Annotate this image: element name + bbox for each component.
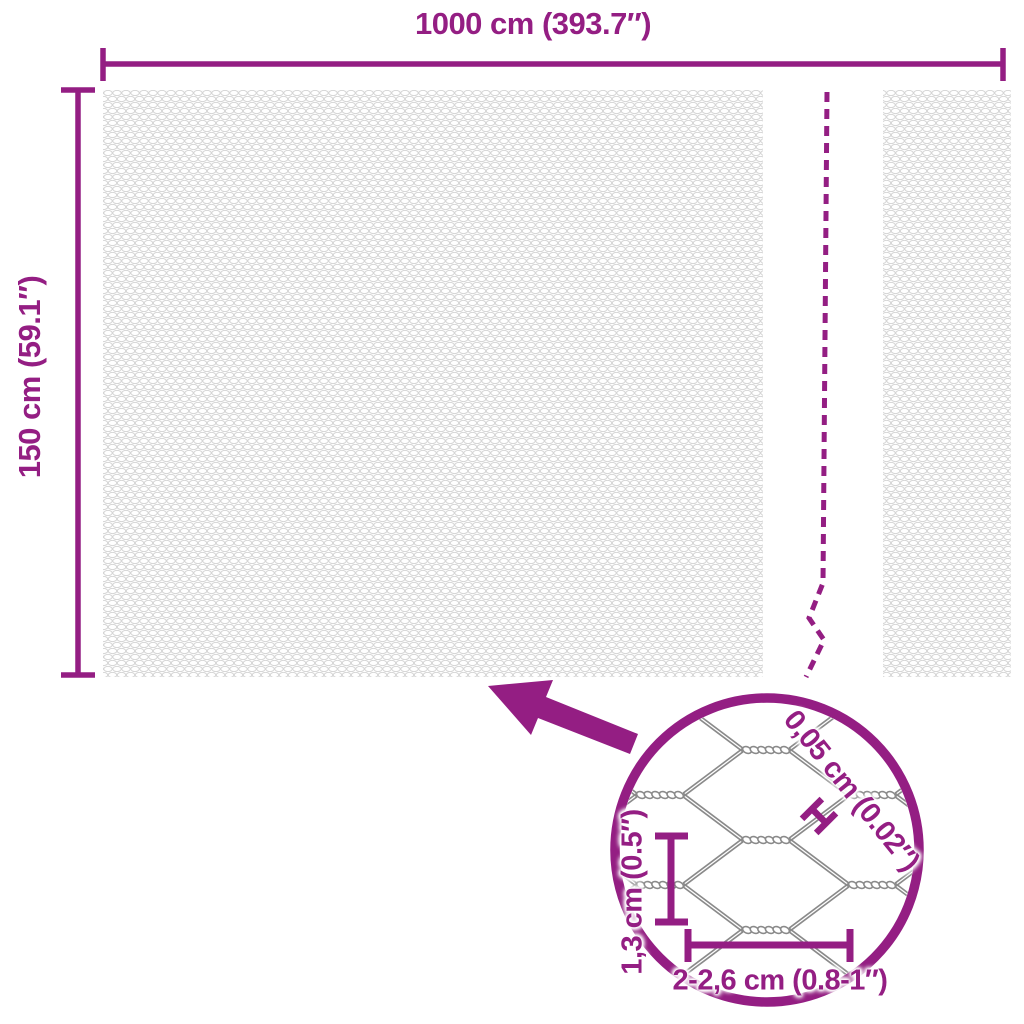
diagram-graphics xyxy=(0,0,1024,1024)
width-dimension-label: 1000 cm (393.7″) xyxy=(415,6,651,42)
mesh-panel-main xyxy=(103,90,763,677)
break-line xyxy=(806,92,827,677)
zoom-arrow-icon xyxy=(488,680,638,754)
detail-circle xyxy=(615,698,919,1002)
product-dimension-diagram: 1000 cm (393.7″) 150 cm (59.1″) 0,05 cm … xyxy=(0,0,1024,1024)
height-dimension-label: 150 cm (59.1″) xyxy=(12,276,48,479)
mesh-panel-right xyxy=(883,90,1011,677)
height-dimension-line xyxy=(61,90,95,675)
width-dimension-line xyxy=(103,48,1003,81)
mesh-opening-width-label: 2-2,6 cm (0.8-1″) xyxy=(673,965,888,998)
mesh-opening-height-label: 1,3 cm (0.5″) xyxy=(617,809,650,974)
